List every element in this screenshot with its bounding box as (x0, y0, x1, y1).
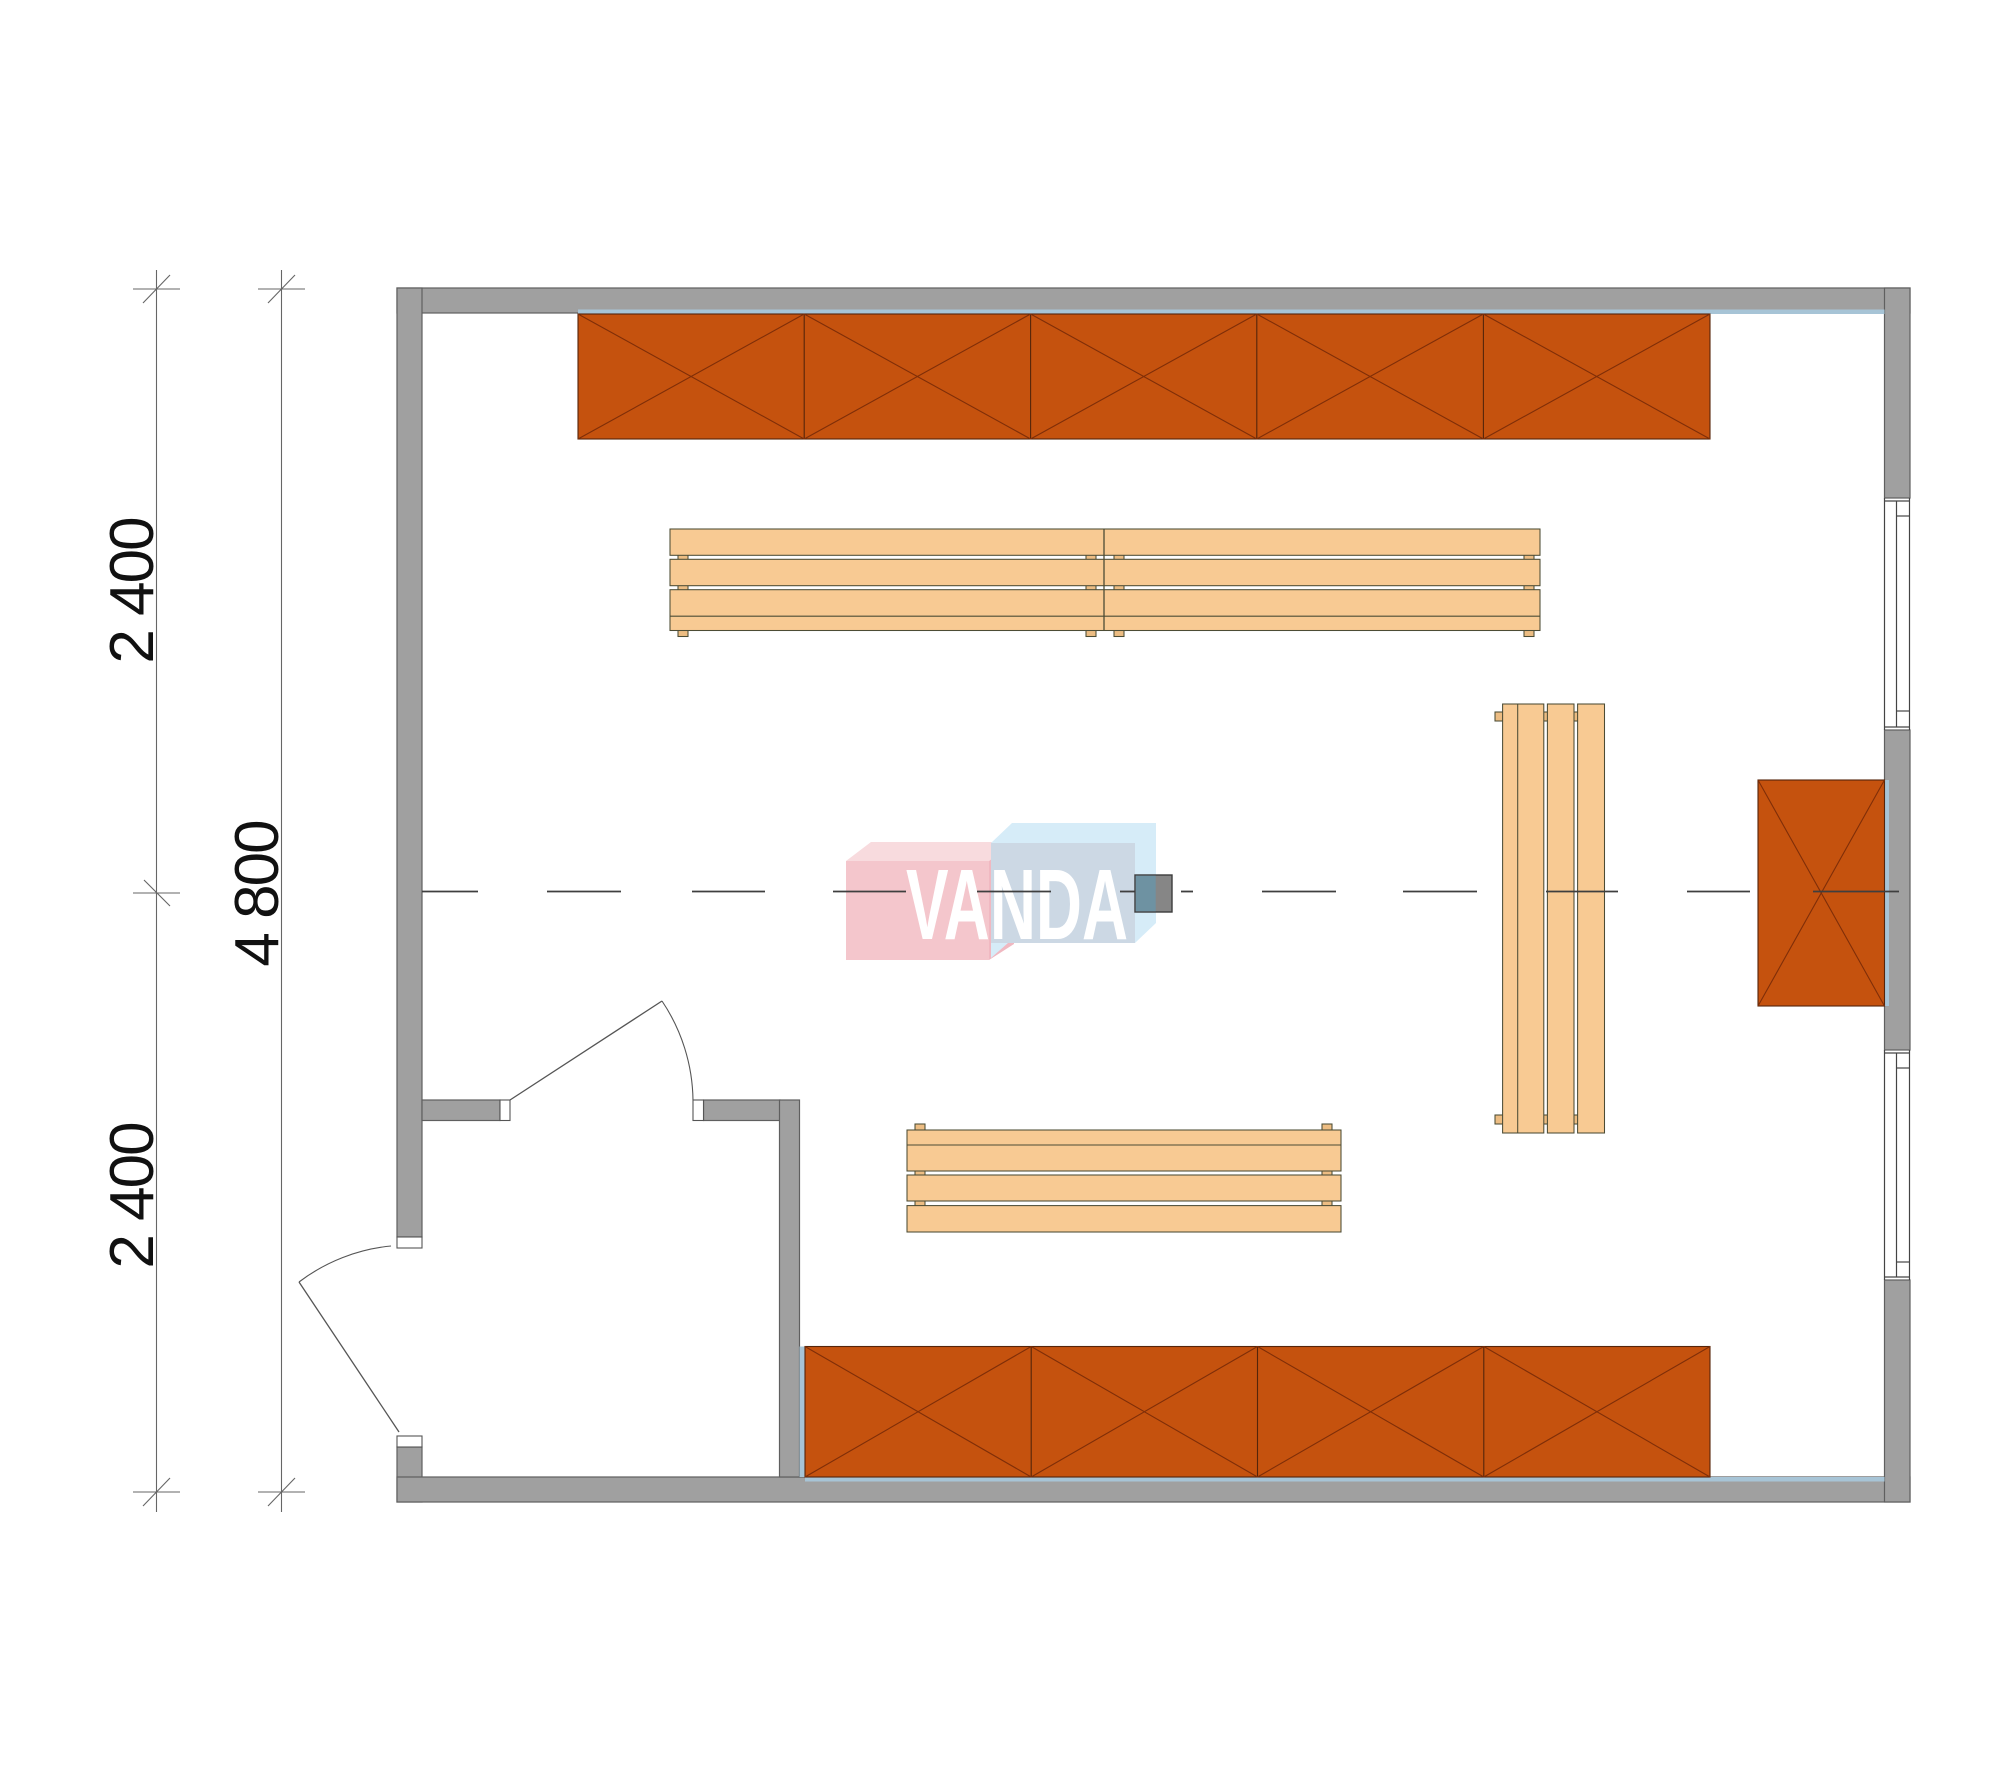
svg-text:2 400: 2 400 (98, 1123, 167, 1269)
svg-text:2 400: 2 400 (98, 518, 167, 664)
svg-text:VANDA: VANDA (906, 849, 1128, 961)
svg-text:4 800: 4 800 (223, 821, 292, 967)
